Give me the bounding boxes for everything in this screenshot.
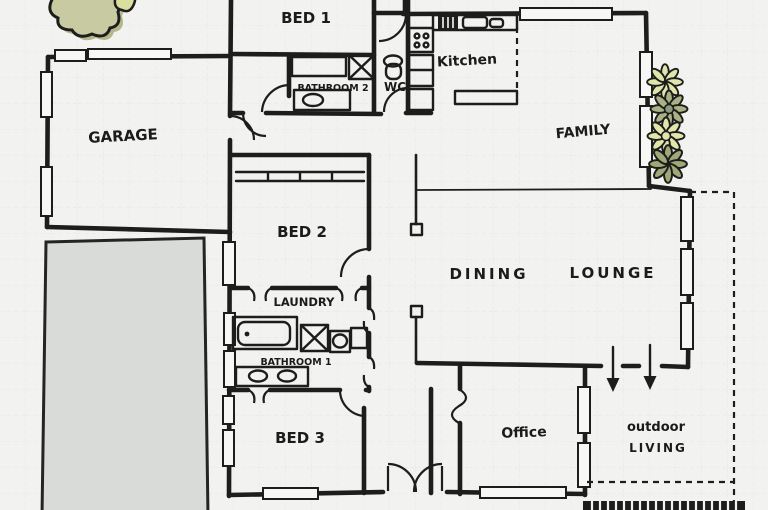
room-label-dining: DINING: [449, 265, 528, 283]
window-office-right-2: [578, 443, 590, 487]
window-bed3-left-1: [223, 396, 234, 424]
room-label-lounge: LOUNGE: [569, 264, 656, 282]
room-label-office: Office: [501, 424, 547, 442]
window-office-bottom: [480, 487, 566, 498]
floor-plan-canvas: BED 1 BATHROOM 2 WC Kitchen FAMILY GARAG…: [0, 0, 768, 510]
room-label-bed3: BED 3: [275, 429, 325, 447]
window-lounge-right-2: [681, 249, 693, 295]
window-left-3: [224, 351, 235, 387]
room-label-garage: GARAGE: [88, 125, 158, 147]
window-bed3-bottom: [263, 488, 318, 499]
window-lounge-right-3: [681, 303, 693, 349]
window-bed2-left: [223, 242, 235, 285]
window-garage-left-1: [41, 72, 52, 117]
driveway: [42, 238, 208, 510]
room-label-bathroom2: BATHROOM 2: [297, 83, 368, 94]
window-lounge-right-1: [681, 197, 693, 241]
window-garage-top: [55, 50, 86, 61]
room-label-bed1: BED 1: [281, 9, 331, 27]
window-family-right-1: [640, 52, 652, 97]
room-label-living: LIVING: [629, 441, 687, 455]
room-label-wc: WC: [384, 80, 406, 94]
room-label-outdoor: outdoor: [627, 420, 686, 435]
room-label-bathroom1: BATHROOM 1: [260, 357, 331, 368]
room-label-kitchen: Kitchen: [437, 51, 498, 70]
window-garage-left-2: [41, 167, 52, 216]
room-label-bed2: BED 2: [277, 223, 327, 241]
window-bed3-left-2: [223, 430, 234, 466]
room-label-laundry: LAUNDRY: [274, 295, 336, 309]
floor-plan-drawing: BED 1 BATHROOM 2 WC Kitchen FAMILY GARAG…: [0, 0, 768, 510]
garage-door-band: [88, 49, 171, 59]
flower-bed-icon: [647, 64, 687, 183]
window-family-top: [520, 8, 612, 20]
window-office-right-1: [578, 387, 590, 433]
